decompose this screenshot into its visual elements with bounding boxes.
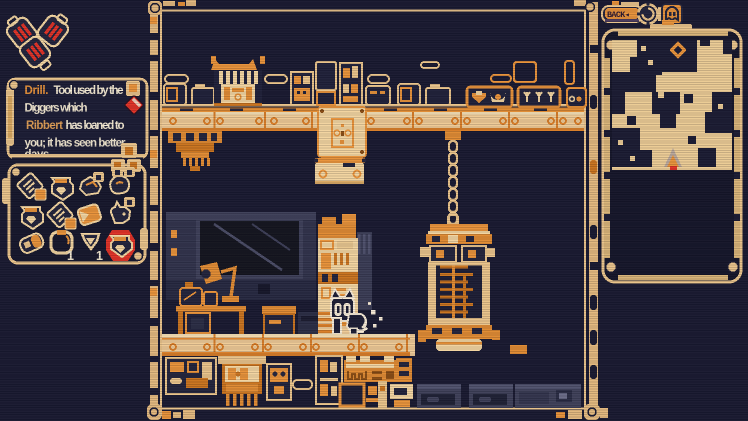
svg-text:Drill.: Drill. xyxy=(25,85,49,97)
svg-text:1: 1 xyxy=(67,249,74,263)
svg-text:Ribbert: Ribbert xyxy=(26,120,63,132)
svg-text:1: 1 xyxy=(96,249,103,263)
svg-text:BACK◂: BACK◂ xyxy=(607,10,630,20)
svg-text:you; it has seen better: you; it has seen better xyxy=(25,138,127,150)
svg-text:has loaned to: has loaned to xyxy=(66,120,125,132)
svg-text:Tool used by the: Tool used by the xyxy=(54,85,124,97)
svg-text:Diggers which: Diggers which xyxy=(25,103,88,115)
